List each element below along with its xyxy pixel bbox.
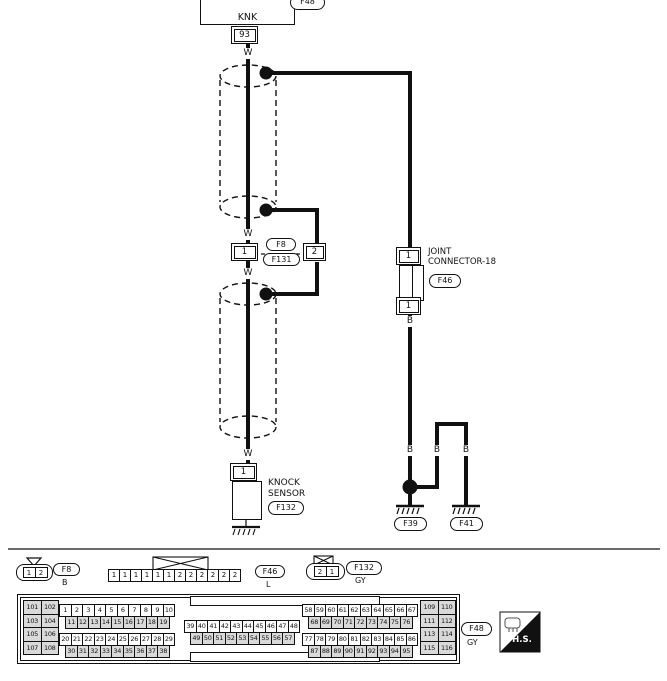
ground-symbol-f39 [396,506,424,514]
f46-connector-color: L [266,580,270,590]
knock-sensor-body [232,481,262,520]
joint-connector-name-line2: CONNECTOR-18 [428,257,496,267]
pin-cell: 106 [41,627,60,642]
wire-color-label: B [459,445,473,456]
inline-pin-1-box: 1 [231,243,258,261]
inline-pin-2: 2 [306,246,324,259]
pin-cell: 2 [229,569,241,582]
f48-pin-row: 878889909192939495 [308,645,412,658]
harness-side-label: H.S. [507,635,537,645]
junction-dot [403,480,418,495]
ground-symbol-sensor [232,518,260,535]
joint-connector-id: F46 [429,274,461,288]
f48-pin-row: 20212223242526272829 [59,633,174,646]
f48-left-pin-block: 101102103104105106107108 [23,600,58,654]
pin-cell: 48 [288,620,301,633]
wire-color-label: W [241,268,255,279]
ground-id-right: F41 [450,517,483,531]
junction-dot [260,288,273,301]
inline-connector-id-lower: F131 [263,253,300,266]
knock-sensor-name-line1: KNOCK [268,478,300,488]
wire-color-label: W [241,229,255,240]
pin-cell: 108 [41,641,60,656]
pin-cell: 38 [157,645,170,658]
f48-connector-id: F48 [461,622,492,636]
f48-pin-row: 12345678910 [59,604,174,617]
pin-cell: 115 [420,641,439,656]
inline-pin-2-box: 2 [303,243,326,261]
f48-pin-row: 686970717273747576 [308,616,412,629]
ground-symbol-f41 [452,506,480,514]
pin-cell: 2 [35,567,48,578]
knock-sensor-connector-id: F132 [268,501,304,515]
joint-connector-bus-line [412,266,413,300]
junction-dot [260,67,273,80]
harness-side-view-icon [500,612,540,652]
ground-id-left: F39 [394,517,427,531]
f48-connector-color: GY [467,638,478,648]
joint-connector-bottom-pin-box: 1 [396,297,421,315]
wiring-diagram-page: KNK F48 93 W W 1 F8 F131 2 W 1 1 JOINT C… [0,0,667,681]
ecm-connector-id: F48 [290,0,325,10]
pin-cell: 105 [23,627,42,642]
pin-cell: 102 [41,600,60,615]
inline-connector-id-upper: F8 [266,238,296,251]
junction-dot [260,204,273,217]
pin-cell: 107 [23,641,42,656]
pin-cell: 114 [438,627,457,642]
ecm-pin-box: 93 [231,26,258,44]
f46-connector-id: F46 [255,565,285,578]
ecm-terminal-label: KNK [201,12,294,23]
f48-pin-row: 58596061626364656667 [302,604,417,617]
pin-cell: 76 [400,616,413,629]
pin-cell: 19 [157,616,170,629]
wire-color-label: W [241,48,255,59]
pin-cell: 113 [420,627,439,642]
f48-right-pin-block: 109110111112113114115116 [420,600,455,654]
pin-cell: 111 [420,614,439,629]
pin-cell: 104 [41,614,60,629]
ground-wire-right [437,424,466,506]
knock-sensor-pin-box: 1 [230,463,257,481]
joint-connector-bottom-pin: 1 [399,300,419,313]
pin-cell: 1 [326,566,339,577]
f8-connector-id: F8 [53,563,80,576]
f48-pin-row: 111213141516171819 [65,616,169,629]
inline-pin-1: 1 [234,246,256,259]
pin-cell: 86 [406,633,419,646]
f46-connector-face: 111111222222 [108,569,240,582]
joint-connector-top-pin-box: 1 [396,247,421,265]
ecm-pin-number: 93 [234,29,256,42]
pin-cell: 109 [420,600,439,615]
pin-cell: 95 [400,645,413,658]
pin-cell: 57 [282,632,295,645]
pin-cell: 101 [23,600,42,615]
joint-connector-top-pin: 1 [399,250,419,263]
pin-cell: 103 [23,614,42,629]
ecm-box: KNK [200,0,295,25]
f8-connector-face: 12 [16,564,53,581]
joint-connector-body [399,265,424,301]
knock-sensor-name-line2: SENSOR [268,489,305,499]
knock-sensor-pin: 1 [233,466,255,479]
f48-pin-row: 39404142434445464748 [184,620,299,633]
f132-connector-id: F132 [346,561,382,575]
f132-connector-face: 21 [306,563,345,580]
pin-cell: 116 [438,641,457,656]
pin-cell: 112 [438,614,457,629]
wire-color-label: B [403,445,417,456]
f48-pin-row: 77787980818283848586 [302,633,417,646]
pin-cell: 110 [438,600,457,615]
pin-cell: 10 [163,604,176,617]
wire-color-label: B [403,316,417,327]
pin-cell: 67 [406,604,419,617]
pin-cell: 29 [163,633,176,646]
wire-color-label: W [241,449,255,460]
shield-to-joint-wire [266,73,410,248]
wire-color-label: B [430,445,444,456]
f132-connector-color: GY [355,576,366,586]
f48-pin-row: 303132333435363738 [65,645,169,658]
joint-connector-name-line1: JOINT [428,247,451,257]
f8-connector-color: B [62,578,68,588]
f48-pin-row: 495051525354555657 [190,632,294,645]
